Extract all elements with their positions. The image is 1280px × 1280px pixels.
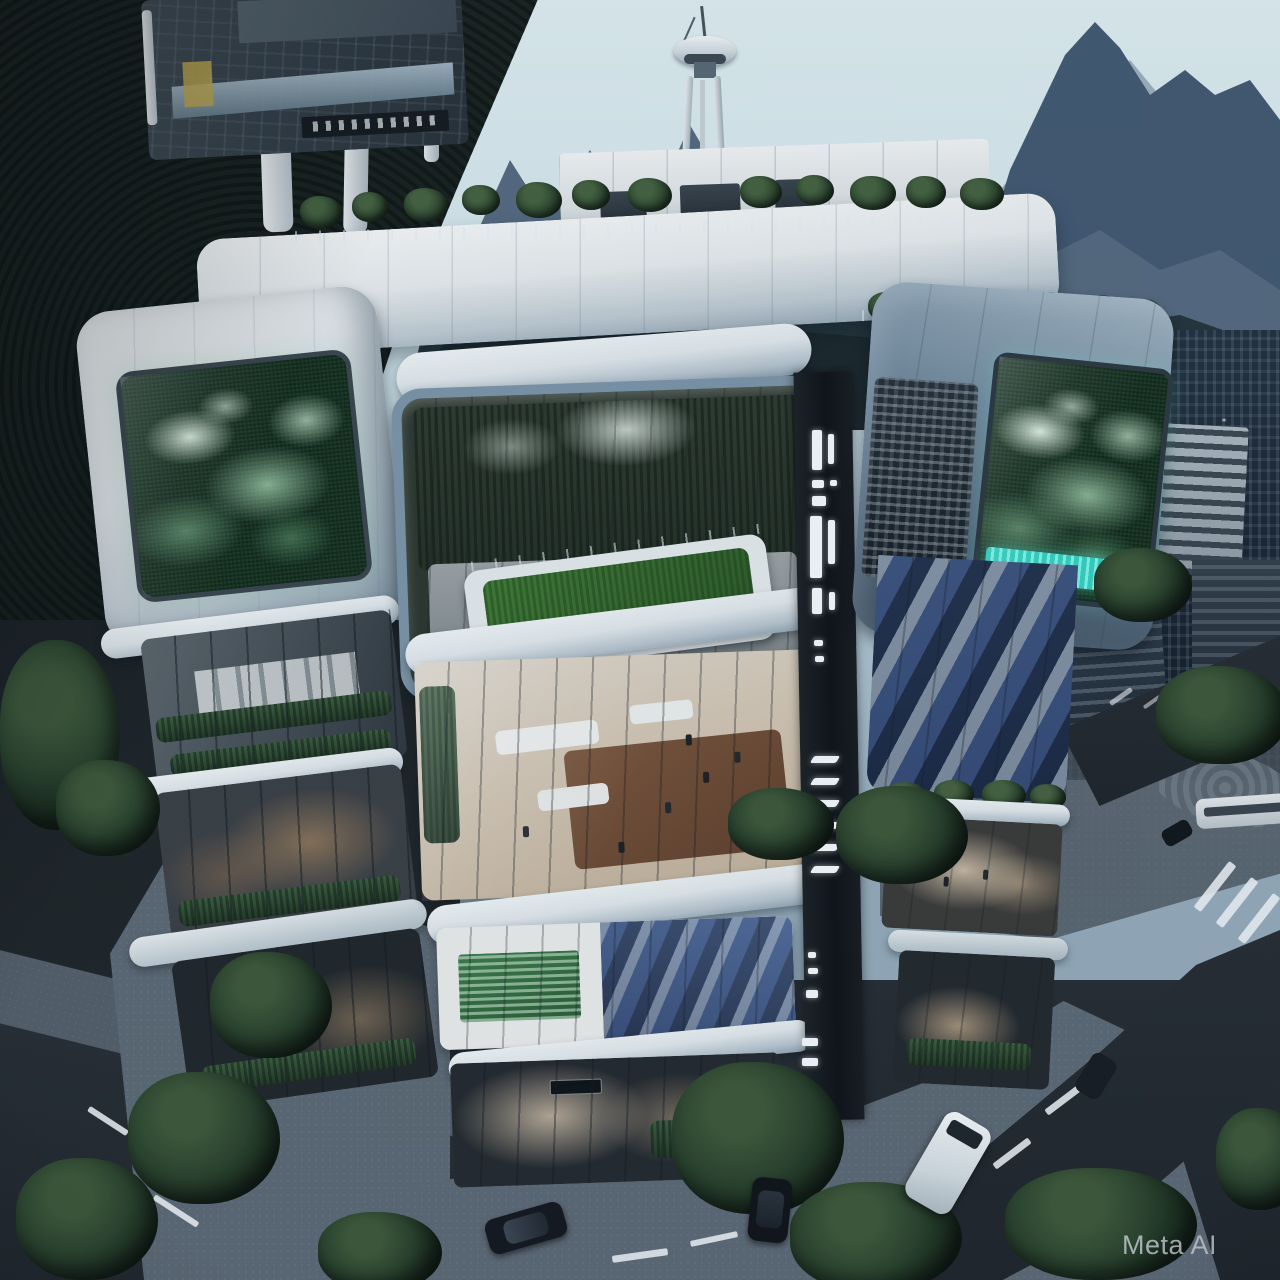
- bush: [850, 176, 896, 210]
- spine-led-bar: [815, 656, 824, 662]
- tree: [1156, 666, 1280, 764]
- spine-led-hatch: [810, 866, 840, 873]
- tree: [728, 788, 834, 860]
- tree: [16, 1158, 158, 1280]
- billboard-sign-strip: [301, 109, 449, 137]
- billboard-sign-glyphs: [313, 115, 437, 132]
- car-roof: [755, 1190, 784, 1230]
- tree: [56, 760, 160, 856]
- bush: [462, 185, 500, 215]
- car-dark-suv: [747, 1176, 793, 1244]
- spine-led-bar: [802, 1038, 818, 1046]
- tree: [836, 786, 968, 884]
- bush: [740, 176, 782, 208]
- van-windshield: [945, 1119, 983, 1150]
- bus-light: [1195, 793, 1280, 830]
- spine-led-bar: [814, 640, 823, 646]
- spine-led-bar: [812, 588, 822, 614]
- spine-led-bar: [828, 520, 835, 564]
- right-blue-glass: [866, 555, 1078, 803]
- bush: [300, 196, 342, 228]
- tree: [128, 1072, 280, 1204]
- spine-led-bar: [828, 434, 834, 464]
- office-floor: [414, 649, 818, 901]
- bush: [628, 178, 672, 212]
- glass-mullions: [414, 649, 818, 901]
- billboard-roof-glass: [237, 0, 456, 43]
- bush: [960, 178, 1004, 210]
- spine-led-bar: [829, 592, 835, 610]
- glass-mullions: [866, 555, 1078, 803]
- spine-led-bar: [830, 480, 837, 486]
- car-roof: [501, 1211, 550, 1245]
- watermark: Meta AI: [1122, 1230, 1280, 1266]
- spine-led-bar: [802, 1058, 818, 1066]
- right-reflection-panel: [861, 377, 979, 584]
- bush: [352, 192, 388, 222]
- bush: [572, 180, 610, 210]
- bush: [404, 188, 448, 222]
- glass-mullions: [893, 950, 1056, 1090]
- spine-led-hatch: [810, 778, 840, 785]
- tree: [1094, 548, 1192, 622]
- spine-led-bar: [810, 516, 822, 578]
- spine-led-bar: [812, 480, 824, 488]
- scene-root: Meta AI: [0, 0, 1280, 1280]
- tree: [210, 952, 332, 1058]
- left-led-screen: [115, 348, 374, 603]
- tree: [1216, 1108, 1280, 1210]
- spine-led-bar: [808, 968, 818, 974]
- spine-led-hatch: [810, 756, 840, 763]
- right-storefront: [893, 950, 1056, 1090]
- spine-led-bar: [812, 430, 822, 470]
- screen-sheen: [120, 354, 368, 598]
- bus-windows: [1203, 802, 1280, 817]
- spine-led-bar: [806, 990, 818, 998]
- spine-led-bar: [812, 496, 826, 506]
- bush: [906, 176, 946, 208]
- bush: [516, 182, 562, 218]
- antenna-neck: [694, 62, 716, 78]
- billboard-slab: [141, 0, 469, 160]
- spine-led-bar: [808, 952, 816, 958]
- billboard-yellow-accent: [183, 61, 214, 107]
- bush: [796, 175, 834, 205]
